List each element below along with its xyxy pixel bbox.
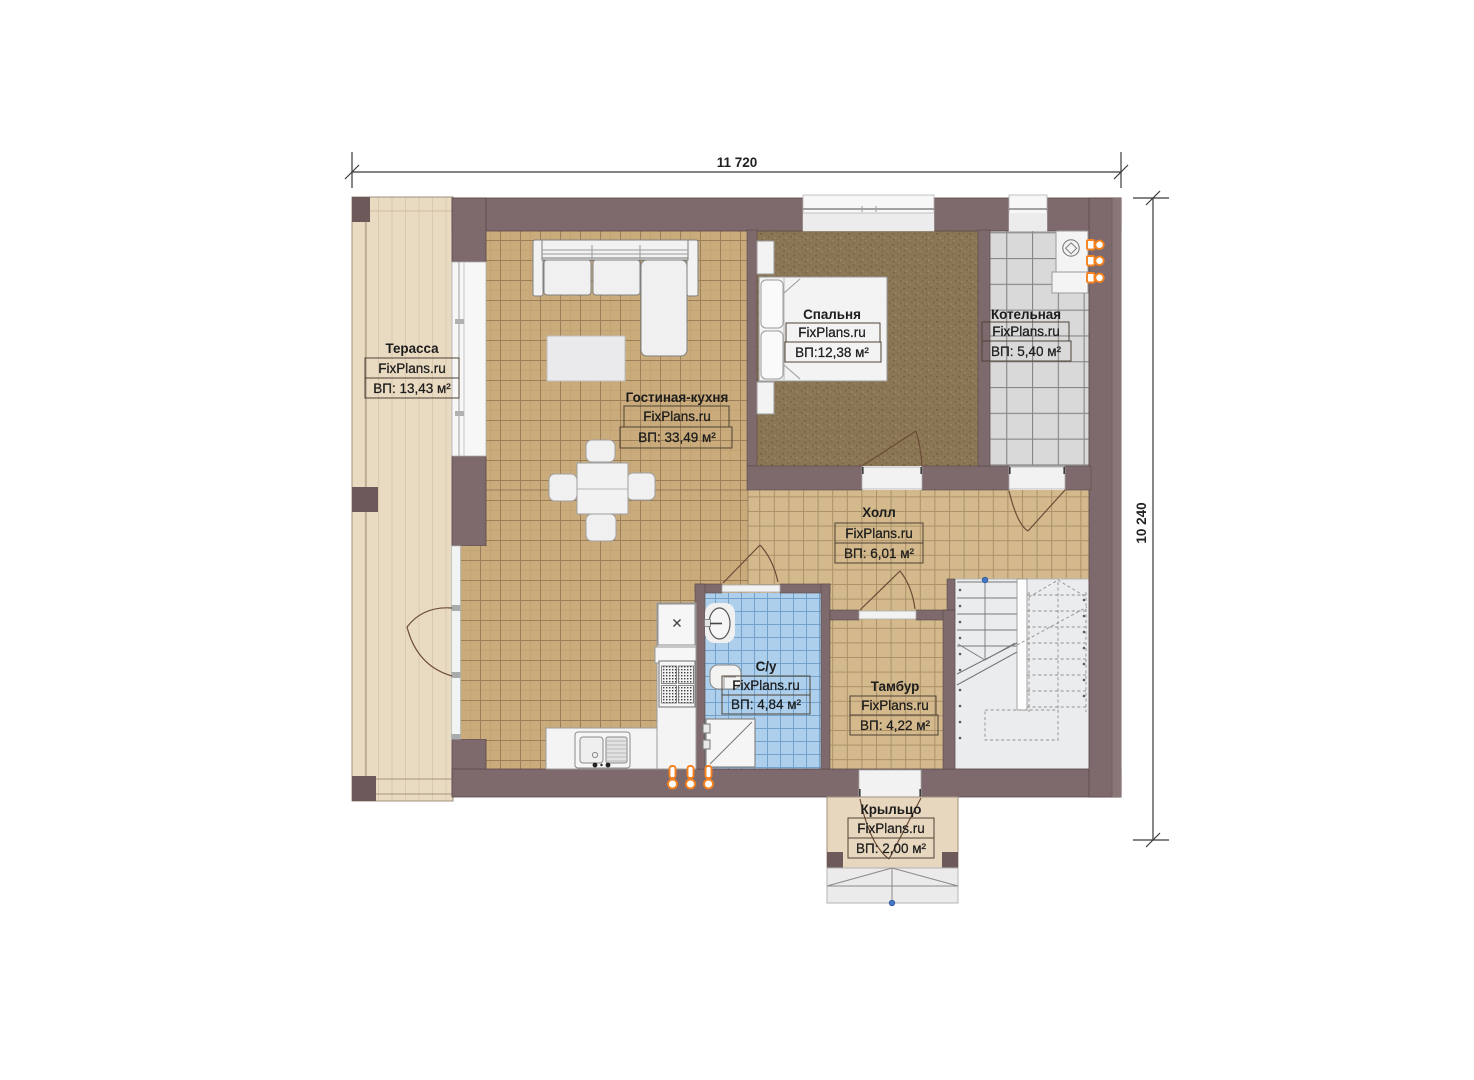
svg-text:FixPlans.ru: FixPlans.ru [798,325,866,340]
svg-text:ВП: 4,22 м²: ВП: 4,22 м² [860,718,931,733]
svg-text:Котельная: Котельная [991,307,1061,322]
svg-text:10 240: 10 240 [1134,502,1149,543]
svg-text:Спальня: Спальня [803,307,861,322]
svg-text:С/у: С/у [756,659,777,674]
svg-text:FixPlans.ru: FixPlans.ru [857,821,925,836]
svg-text:ВП: 4,84 м²: ВП: 4,84 м² [731,697,802,712]
svg-text:Тамбур: Тамбур [871,679,920,694]
svg-text:ВП: 2,00 м²: ВП: 2,00 м² [856,841,927,856]
svg-text:Гостиная-кухня: Гостиная-кухня [626,390,729,405]
svg-text:FixPlans.ru: FixPlans.ru [861,698,929,713]
svg-text:11 720: 11 720 [717,155,758,170]
svg-text:Холл: Холл [862,505,896,520]
svg-text:FixPlans.ru: FixPlans.ru [732,678,800,693]
svg-text:FixPlans.ru: FixPlans.ru [992,324,1060,339]
svg-text:ВП: 6,01 м²: ВП: 6,01 м² [844,546,915,561]
svg-text:ВП:12,38 м²: ВП:12,38 м² [795,345,869,360]
svg-text:ВП: 33,49 м²: ВП: 33,49 м² [638,430,716,445]
svg-text:FixPlans.ru: FixPlans.ru [378,361,446,376]
svg-text:Терасса: Терасса [385,341,439,356]
svg-text:FixPlans.ru: FixPlans.ru [643,409,711,424]
svg-text:ВП: 5,40 м²: ВП: 5,40 м² [991,344,1062,359]
svg-text:Крыльцо: Крыльцо [861,802,922,817]
svg-text:FixPlans.ru: FixPlans.ru [845,526,913,541]
svg-text:ВП: 13,43 м²: ВП: 13,43 м² [373,381,451,396]
